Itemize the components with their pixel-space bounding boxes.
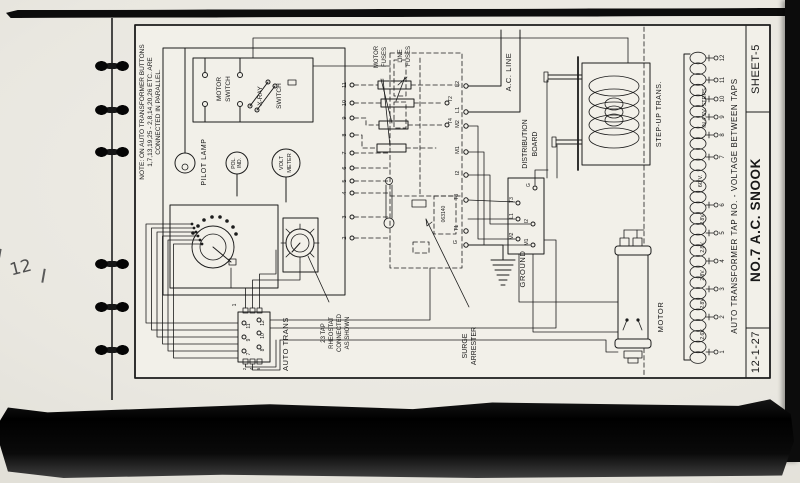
terminal-label: L1 (509, 213, 515, 219)
step-up-trans-label: STEP-UP TRANS. (656, 81, 663, 147)
motor-fuses-label: MOTOR (374, 45, 380, 68)
terminal-number: 11 (342, 82, 348, 88)
tap-number: 2 (242, 367, 247, 370)
sheet-number: SHEET-5 (750, 44, 762, 94)
pol-ind-label: IND. (237, 158, 243, 168)
motor-label: MOTOR (656, 302, 665, 333)
motor-fuses-label: FUSES (382, 47, 388, 67)
voltage-label: 2.8V. (700, 241, 706, 252)
tap-number: 11 (246, 323, 252, 328)
terminal-label: M1 (455, 146, 461, 154)
volt-meter-label: METER (287, 153, 293, 173)
tap-number: 10 (720, 95, 726, 102)
tap-number: 7 (246, 352, 252, 355)
terminal-label: L1 (455, 107, 461, 113)
rheostat-label: CONNECTED (337, 313, 343, 352)
terminal-label: M1 (524, 238, 530, 245)
terminal-number: 7 (342, 151, 348, 154)
terminal-label: G (453, 240, 459, 244)
voltage-label: 2.8V. (700, 297, 706, 308)
tap-number: 12 (260, 320, 266, 326)
tap-number: 11 (720, 76, 726, 83)
tap-number: 12 (720, 54, 726, 61)
terminal-number: 6 (342, 166, 348, 169)
terminal-label: I2 (455, 171, 461, 176)
line-fuses-label: FUSES (406, 46, 412, 66)
drawing-date: 12-1-27 (750, 331, 762, 373)
terminal-label: T1 (454, 225, 460, 232)
wiring-diagram: SHEET-5 NO.7 A.C. SNOOK 12-1-27 NOTE: ON… (0, 0, 800, 483)
terminal-label: M2 (509, 232, 515, 239)
voltage-label: 60 V. (698, 174, 704, 187)
note-line: 1,7,13,19,25 - 2,8,14,20,26 ETC. ARE (147, 57, 154, 167)
surge-arrester-label: SURGE (462, 333, 469, 358)
distribution-board-label: DISTRIBUTION (522, 119, 529, 168)
part-number: 063140 (441, 205, 447, 222)
motor-switch-label: SWITCH (225, 76, 232, 102)
terminal-number: 9 (342, 116, 348, 119)
terminal-number: 8 (342, 133, 348, 136)
steps-note: IN 4.5V. STEPS (702, 88, 708, 128)
terminal-label: M2 (455, 120, 461, 128)
terminal-label: G (526, 183, 532, 187)
distribution-board-label: BOARD (532, 132, 539, 157)
drawing-title: NO.7 A.C. SNOOK (748, 158, 763, 282)
terminal-label: T4 (448, 118, 454, 124)
xray-switch-label: SWITCH (276, 83, 283, 109)
winding-caption: AUTO TRANSFORMER TAP NO. - VOLTAGE BETWE… (730, 78, 739, 333)
tap-number: 1 (232, 303, 238, 306)
terminal-number: 10 (342, 100, 348, 106)
auto-trans-label: AUTO TRANS (281, 317, 290, 371)
voltage-label: 2.8V. (700, 269, 706, 280)
ac-line-label: A.C. LINE (504, 53, 513, 92)
pilot-lamp-label: PILOT LAMP (201, 138, 208, 185)
tap-number: 9 (246, 338, 252, 341)
volt-meter-label: VOLT (279, 155, 285, 170)
line-fuses-label: LINE (398, 49, 404, 62)
surge-arrester-label: ARRESTER (471, 327, 478, 365)
tap-number: 8 (260, 348, 266, 351)
xray-switch-label: X-RAY (257, 86, 264, 106)
tap-number: 10 (260, 333, 266, 339)
terminal-number: 2 (342, 236, 348, 239)
terminal-label: I2 (524, 219, 530, 223)
terminal-label: T2 (448, 96, 454, 102)
note-line: CONNECTED IN PARALLEL. (155, 69, 162, 155)
terminal-number: 4 (342, 191, 348, 194)
terminal-number: 3 (342, 215, 348, 218)
terminal-label: T3 (454, 194, 460, 201)
voltage-label: 2.6V. (700, 328, 706, 339)
note-line: NOTE: ON AUTO TRANSFORMER BUTTONS (139, 44, 146, 180)
rheostat-label: RHEOSTAT (329, 317, 335, 349)
ground-label: GROUND (518, 251, 527, 288)
voltage-label: 2.8V. (700, 213, 706, 224)
scanned-binder-page: 12 SHEET-5 NO.7 A.C. SNOOK 12-1-27 NOTE:… (0, 0, 800, 483)
terminal-label: L2 (455, 81, 461, 87)
rheostat-label: AS SHOWN (345, 317, 351, 350)
motor-switch-label: MOTOR (216, 77, 223, 101)
terminal-number: 5 (342, 179, 348, 182)
